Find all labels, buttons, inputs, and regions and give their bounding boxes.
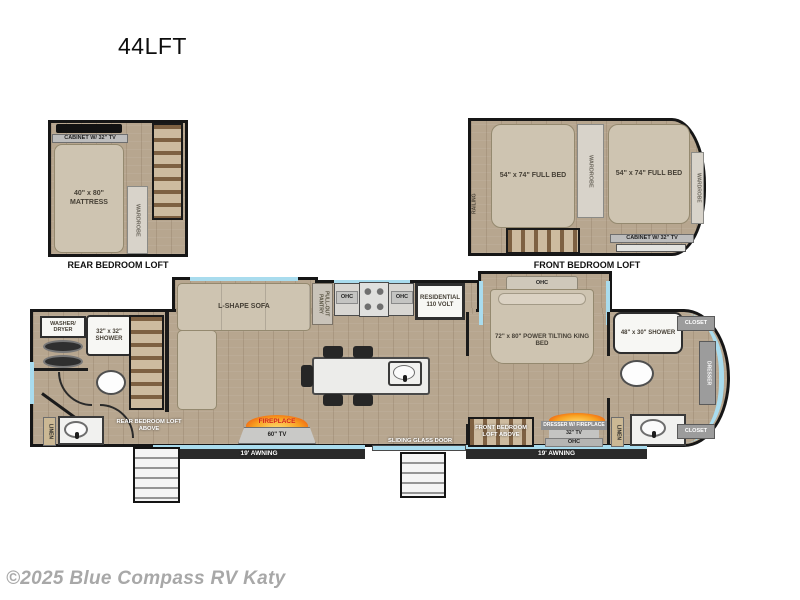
island-sink-basin-icon: [393, 365, 415, 380]
rear-toilet-icon: [96, 370, 126, 395]
rear-stairs-label: REAR BEDROOM LOFT ABOVE: [110, 412, 188, 440]
rear-loft-title: REAR BEDROOM LOFT: [48, 259, 188, 271]
floorplan-page: 44LFT ©2025 Blue Compass RV Katy CABINET…: [0, 0, 800, 600]
rear-loft-mattress: 40" x 80" MATTRESS: [54, 144, 124, 253]
rear-shower: 32" x 32" SHOWER: [86, 315, 132, 356]
sliding-glass-door: [372, 445, 466, 451]
wall-washer: [34, 368, 88, 371]
front-shower: 48" x 30" SHOWER: [613, 312, 683, 354]
stool-2: [353, 346, 373, 358]
rear-interior-stairs: [129, 315, 164, 410]
front-stairs-label: FRONT BEDROOM LOFT ABOVE: [468, 421, 534, 443]
front-loft-full-bed-right: 54" x 74" FULL BED: [608, 124, 690, 224]
sofa-chaise: [177, 330, 217, 410]
wall-rear-bath: [165, 312, 169, 412]
ohc-right: OHC: [391, 291, 413, 304]
dresser-ohc: OHC: [545, 438, 603, 447]
page-title: 44LFT: [118, 33, 187, 60]
front-loft-full-bed-left: 54" x 74" FULL BED: [491, 124, 575, 228]
stool-5: [301, 365, 313, 387]
wall-bath-front-bottom: [607, 398, 610, 445]
front-loft-wardrobe-center: WARDROBE: [577, 124, 604, 218]
rear-loft-stairs: [152, 123, 183, 220]
tv-60: 60" TV: [238, 427, 316, 444]
front-toilet-icon: [620, 360, 654, 387]
front-loft-cabinet-label: CABINET W/ 32" TV: [610, 234, 694, 243]
closet-bottom: CLOSET: [677, 424, 715, 439]
stool-1: [323, 346, 343, 358]
closet-top: CLOSET: [677, 316, 715, 331]
wall-bedroom-left-top: [466, 312, 469, 356]
tv-32: 32" TV: [549, 430, 599, 438]
rear-loft-tv-icon: [56, 124, 122, 133]
front-linen: LINEN: [611, 417, 624, 447]
front-loft-railing: RAILING: [470, 176, 481, 232]
front-loft-wardrobe-right: WARDROBE: [691, 152, 704, 224]
front-loft-title: FRONT BEDROOM LOFT: [468, 259, 706, 271]
entry-steps: [133, 447, 180, 503]
wall-bath-front-top: [607, 312, 610, 356]
awning-front: 19' AWNING: [466, 449, 647, 459]
rear-loft-wardrobe: WARDROBE: [127, 186, 148, 254]
front-loft-stairs: [506, 228, 580, 254]
bedroom-window-left: [479, 281, 483, 325]
cooktop-icon: [359, 282, 389, 317]
awning-rear: 19' AWNING: [153, 449, 365, 459]
stool-3: [323, 394, 343, 406]
dryer-icon: [43, 355, 83, 368]
washer-icon: [43, 340, 83, 353]
washer-dryer: WASHER/ DRYER: [40, 316, 86, 338]
front-sink-icon: [640, 419, 666, 437]
stool-4: [353, 394, 373, 406]
rear-sink-icon: [64, 421, 88, 438]
pullout-pantry: PULL-OUT PANTRY: [312, 283, 333, 325]
rear-linen: LINEN: [43, 417, 56, 446]
king-bed-label: 72" x 80" POWER TILTING KING BED: [490, 320, 594, 360]
patio-steps: [400, 452, 446, 498]
fridge: RESIDENTIAL 110 VOLT: [415, 283, 465, 320]
king-bed-pillows-icon: [498, 293, 586, 305]
watermark: ©2025 Blue Compass RV Katy: [6, 568, 285, 590]
dresser-fireplace: DRESSER W/ FIREPLACE: [541, 421, 607, 430]
rear-loft-cabinet-label: CABINET W/ 32" TV: [52, 134, 128, 143]
l-shape-sofa: L-SHAPE SOFA: [177, 283, 311, 331]
ohc-left: OHC: [336, 291, 358, 304]
front-dresser: DRESSER: [699, 341, 716, 405]
sofa-window: [190, 277, 298, 281]
front-loft-tv-cabinet-icon: [616, 244, 686, 252]
